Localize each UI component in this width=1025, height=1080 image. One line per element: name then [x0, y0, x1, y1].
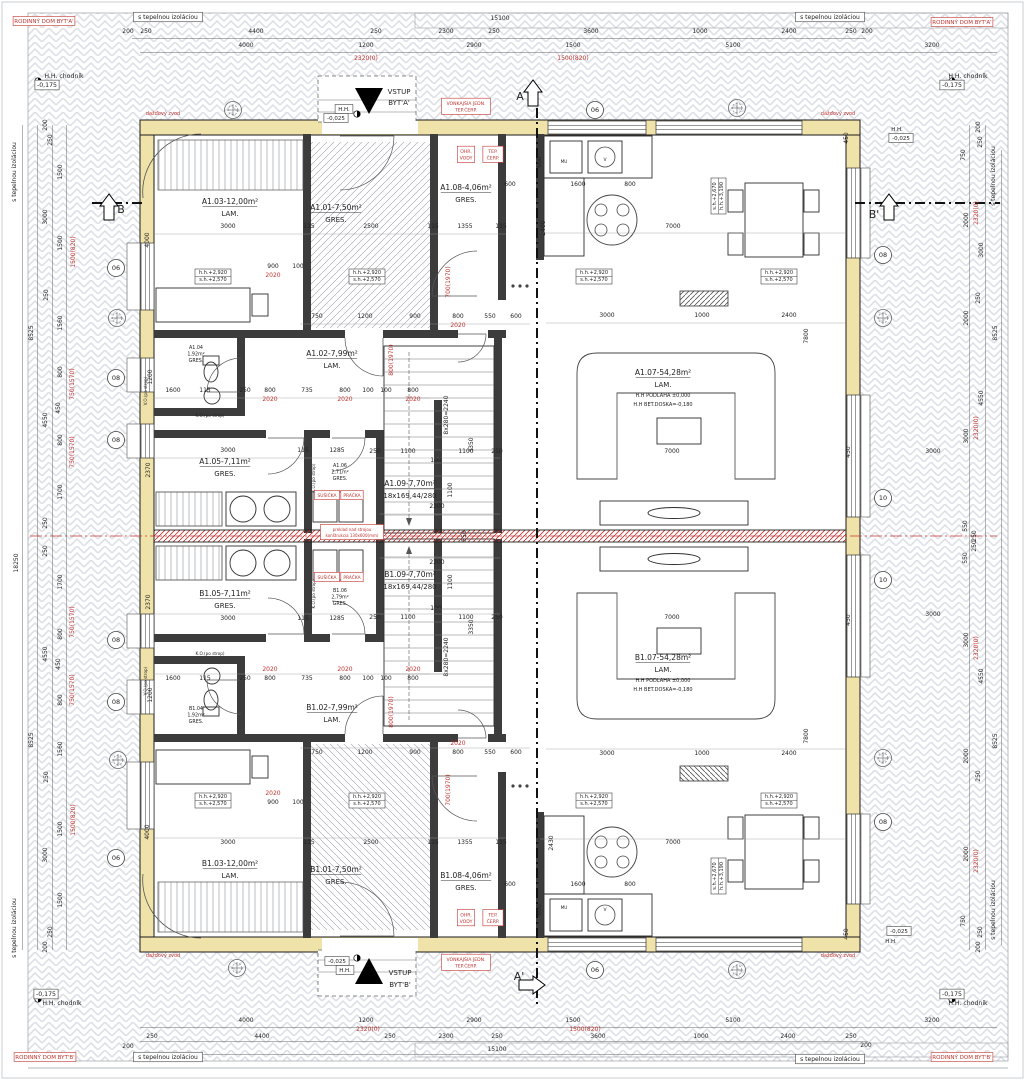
dim-label: 7800 [803, 728, 810, 743]
dim-label: 250 [43, 289, 50, 301]
window [141, 243, 154, 310]
dim-label: 3350 [468, 437, 475, 452]
height-label: s.h.+2,570 [580, 277, 607, 283]
room-floor-label: LAM. [654, 666, 671, 674]
interior-wall [488, 330, 506, 338]
entry-dots [518, 284, 521, 287]
dim-label: 3000 [925, 611, 940, 618]
dim-label: 3000 [42, 209, 49, 224]
annotation: s tepelnou izoláciou [138, 14, 198, 21]
dim-label: 250 [140, 28, 152, 35]
window-sill [127, 424, 140, 458]
dim-label: 5100 [725, 1017, 740, 1024]
dim-label: 800 [57, 694, 64, 706]
dim-label: 800 [339, 387, 351, 394]
interior-wall [383, 330, 458, 338]
annotation: -0,175 [37, 82, 57, 89]
chimney-block [680, 291, 728, 306]
red-note: PRAČKA [343, 492, 360, 499]
dim-label: 3000 [925, 448, 940, 455]
height-label: h.h.+2,920 [580, 270, 608, 276]
shower [156, 546, 222, 580]
dim-label: 1500(820) [70, 236, 77, 267]
dim-label: 1355 [457, 223, 472, 230]
dim-label: 450 [845, 446, 852, 458]
red-note: konštrukcia 130x600(mm) [326, 533, 379, 538]
dim-label: 115 [303, 223, 315, 230]
red-note: VONKAJŠIA JEDN. [446, 956, 485, 963]
room-label-small: B1.04 [189, 706, 203, 712]
dim-label: 800 [452, 749, 464, 756]
annotation: s tepelnou izoláciou [990, 880, 997, 940]
room-note: H.H PODLAHA ±0,000 [635, 393, 690, 399]
dim-label: 450 [55, 658, 62, 670]
dim-label: 2020 [265, 790, 280, 797]
window-sill [127, 358, 140, 392]
dim-label: 2900 [466, 42, 481, 49]
dim-label: 800(1970) [388, 696, 395, 727]
dim-label: 2320(0) [973, 201, 980, 225]
dim-label: 18250 [13, 553, 20, 572]
dim-label: 2320(0) [973, 416, 980, 440]
dim-label: 2020 [450, 322, 465, 329]
annotation: s tepelnou izoláciou [800, 14, 860, 21]
dim-label: 1700 [57, 574, 64, 589]
height-label: h.h.+3,190 [719, 862, 725, 890]
red-note: PRAČKA [343, 574, 360, 581]
sheet-title: RODINNÝ DOM BYT'A' [14, 18, 73, 25]
annotation: H.H. chodník [948, 72, 988, 80]
interior-wall [303, 134, 311, 330]
dim-label: 2020 [405, 396, 420, 403]
room-floor-label: LAM. [654, 381, 671, 389]
height-label: h.h.+2,920 [199, 794, 227, 800]
room-label-small: 2,71m² [331, 470, 348, 476]
annotation: s tepelnou izoláciou [138, 1054, 198, 1061]
dim-label: 1200 [147, 369, 154, 384]
dim-label: 2020 [450, 740, 465, 747]
height-label: h.h.+2,920 [353, 794, 381, 800]
height-label: s.h.+2,570 [199, 801, 226, 807]
room-floor-label: GRES. [455, 196, 476, 204]
room-label-small: GRES. [333, 601, 348, 607]
room-label: B1.01-7,50m² [310, 865, 362, 874]
grid-bubble-label: 08 [112, 698, 120, 706]
dim-label: 115 [297, 615, 309, 622]
dim-label: 115 [303, 839, 315, 846]
shower [156, 492, 222, 526]
dim-label: 3000 [963, 632, 970, 647]
dim-label: 1100 [400, 614, 415, 621]
dim-label: 750(1570) [69, 674, 76, 705]
annotation: B' [869, 208, 880, 221]
annotation: H.H. chodník [42, 999, 82, 1007]
window [141, 762, 154, 829]
height-box: h.h.+2,920s.h.+2,570 [349, 269, 385, 284]
dim-label: 1500(820) [569, 1026, 600, 1033]
dim-label: 3000 [220, 447, 235, 454]
dim-label: 115 [495, 223, 507, 230]
dim-label: 450 [843, 132, 850, 144]
dim-label: 600 [536, 156, 543, 168]
dim-label: 1100 [447, 482, 454, 497]
red-note: VODY [460, 919, 473, 925]
dim-label: 800 [407, 387, 419, 394]
annotation: -0,025 [328, 959, 346, 965]
dim-label: 900 [409, 749, 421, 756]
dim-label: 2300 [438, 1033, 453, 1040]
room-floor-label: GRES. [325, 216, 346, 224]
dim-label: 4000 [144, 824, 151, 839]
annotation: K.O.(po strop) [195, 651, 224, 656]
room-label: B1.02-7,99m² [306, 703, 358, 712]
sheet-title: RODINNÝ DOM BYT'B' [15, 1054, 74, 1061]
dim-label: 250 [971, 530, 978, 542]
dim-label: 800 [624, 881, 636, 888]
dim-label: 3000 [42, 847, 49, 862]
room-label: A1.01-7,50m² [310, 203, 362, 212]
dim-label: 1200 [357, 749, 372, 756]
grid-bubble-label: 08 [112, 636, 120, 644]
entry-dots [511, 784, 514, 787]
dim-label: 550 [962, 520, 969, 532]
dim-label: 1700 [57, 484, 64, 499]
height-label: s.h.+2,570 [199, 277, 226, 283]
room-floor-label: LAM. [221, 210, 238, 218]
height-label: h.h.+2,920 [580, 794, 608, 800]
grid-bubble-label: 06 [591, 966, 599, 974]
dim-label: 600 [504, 181, 516, 188]
dim-label: 8x280=2240 [443, 395, 450, 434]
dim-label: 2020 [337, 666, 352, 673]
room-floor-label: GRES. [214, 602, 235, 610]
annotation: A [516, 90, 524, 103]
dim-label: 15100 [490, 15, 509, 22]
window-sill [861, 395, 870, 517]
dim-label: 1500(820) [70, 804, 77, 835]
height-label: s.h.+2,570 [765, 277, 792, 283]
dim-label: 2020 [262, 396, 277, 403]
dim-label: 800 [264, 387, 276, 394]
interior-wall [154, 430, 266, 438]
dim-label: 200 [42, 941, 49, 953]
dim-label: 1100 [400, 448, 415, 455]
dim-label: 2000 [963, 310, 970, 325]
annotation: -0,025 [892, 136, 910, 142]
cooktop [587, 827, 637, 877]
room-label: A1.09-7,70m² [384, 479, 436, 488]
annotation: A' [514, 970, 525, 983]
annotation: s tepelnou izoláciou [990, 146, 997, 206]
dim-label: 250 [845, 28, 857, 35]
dim-label: 450 [55, 402, 62, 414]
dim-label: 7000 [664, 448, 679, 455]
red-note: OHR. [460, 912, 472, 918]
dim-label: 1500 [57, 164, 64, 179]
dim-label: 2320(0) [973, 849, 980, 873]
dim-label: 3200 [924, 42, 939, 49]
height-box: h.h.+2,920s.h.+2,570 [195, 793, 231, 808]
dim-label: 3000 [599, 750, 614, 757]
window [847, 168, 860, 258]
red-note: TEP. [487, 149, 497, 155]
entry-dots [525, 284, 528, 287]
dim-label: 1500 [57, 892, 64, 907]
room-floor-label: GRES. [455, 884, 476, 892]
room-label-small: GRES. [189, 719, 204, 725]
window [548, 938, 646, 951]
red-note: VODY [460, 156, 473, 162]
dim-label: 1200 [358, 1017, 373, 1024]
dim-label: 800 [624, 181, 636, 188]
grid-bubble-label: 08 [112, 436, 120, 444]
dim-label: 3600 [583, 28, 598, 35]
dim-label: 100 [380, 675, 392, 682]
grid-bubble-label: 10 [879, 576, 887, 584]
dim-label: 15100 [487, 1046, 506, 1053]
dim-label: 450 [845, 614, 852, 626]
dim-label: 7800 [803, 328, 810, 343]
dim-label: 250 [975, 292, 982, 304]
height-label: s.h.+2,570 [765, 801, 792, 807]
dim-label: 600 [510, 313, 522, 320]
tiled-floor-hatch [311, 744, 430, 930]
dim-label: 200 [975, 121, 982, 133]
dim-label: 2320(0) [356, 1026, 380, 1033]
window [656, 121, 802, 134]
dim-label: 115 [199, 675, 211, 682]
room-note: H.H BET.DOSKA=-0,180 [633, 402, 692, 408]
dim-label: 3000 [220, 223, 235, 230]
dim-label: 2320(0) [354, 55, 378, 62]
dim-label: 735 [301, 675, 313, 682]
dim-label: 1600 [570, 881, 585, 888]
window [847, 814, 860, 904]
annotation: K.O.(po strop) [311, 463, 316, 492]
dim-label: 2400 [540, 220, 547, 235]
dim-label: 1600 [165, 675, 180, 682]
dim-label: 1200 [357, 313, 372, 320]
dim-label: 200 [42, 119, 49, 131]
interior-wall [154, 656, 245, 664]
dim-label: 200 [122, 1043, 134, 1050]
window-sill [127, 680, 140, 714]
floor-plan-canvas: RODINNÝ DOM BYT'A'RODINNÝ DOM BYT'A'RODI… [0, 0, 1025, 1080]
dim-label: 200 [861, 28, 873, 35]
interior-wall [237, 660, 245, 734]
dim-label: 3200 [924, 1017, 939, 1024]
dim-label: 250 [977, 926, 984, 938]
room-label: A1.07-54,28m² [635, 368, 691, 377]
window-sill [861, 555, 870, 677]
dim-label: 750 [311, 749, 323, 756]
height-box: h.h.+2,920s.h.+2,570 [349, 793, 385, 808]
interior-wall [488, 734, 506, 742]
window-sill [127, 243, 140, 310]
dim-label: 1285 [329, 615, 344, 622]
annotation: dažďový zvod [146, 952, 180, 959]
dim-label: 1000 [693, 1033, 708, 1040]
red-note: TEP.ČERP. [454, 963, 477, 970]
dim-label: 115 [199, 387, 211, 394]
red-note: VONKAJŠIA JEDN. [446, 100, 485, 107]
height-box: s.h.+2,670h.h.+3,190 [711, 178, 726, 214]
dim-label: 2430 [548, 835, 555, 850]
annotation: VSTUP [389, 969, 412, 977]
interior-wall [154, 634, 266, 642]
dim-label: 4550 [42, 646, 49, 661]
dim-label: 100 [362, 387, 374, 394]
annotation: s tepelnou izoláciou [800, 1056, 860, 1063]
dim-label: 750(1570) [69, 368, 76, 399]
dim-label: 2400 [781, 750, 796, 757]
dim-label: 250 [975, 770, 982, 782]
dim-label: 1500 [565, 1017, 580, 1024]
red-note: preklad nad strojou [333, 527, 372, 532]
chimney-block [680, 766, 728, 781]
dim-label: 600 [510, 749, 522, 756]
height-label: h.h.+2,920 [765, 794, 793, 800]
red-note: ČERP. [487, 918, 500, 925]
window-sill [127, 762, 140, 829]
room-label: A1.08-4,06m² [440, 183, 492, 192]
room-label-small: GRES. [189, 358, 204, 364]
dim-label: 1600 [165, 387, 180, 394]
dim-label: 2320(0) [973, 636, 980, 660]
red-note: TEP. [487, 912, 497, 918]
room-label: A1.03-12,00m² [202, 197, 258, 206]
dim-label: 2020 [265, 272, 280, 279]
window [656, 938, 802, 951]
dim-label: 250 [488, 28, 500, 35]
dim-label: 4400 [248, 28, 263, 35]
interior-wall [365, 634, 384, 642]
drawing-sheet: RODINNÝ DOM BYT'A'RODINNÝ DOM BYT'A'RODI… [0, 0, 1025, 1080]
dim-label: 250 [491, 448, 503, 455]
dim-label: 1355 [457, 839, 472, 846]
red-note: TEP.ČERP. [454, 107, 477, 114]
dim-label: 250 [370, 28, 382, 35]
room-label-small: GRES. [333, 476, 348, 482]
dim-label: 735 [301, 387, 313, 394]
dim-label: 8525 [28, 732, 35, 747]
annotation: -0,175 [942, 991, 962, 998]
window-sill [861, 814, 870, 904]
dim-label: 200 [860, 1042, 872, 1049]
dim-label: 250 [146, 1033, 158, 1040]
dim-label: 1285 [329, 447, 344, 454]
dim-label: 800 [452, 313, 464, 320]
grid-bubble-label: 08 [879, 818, 887, 826]
room-floor-label: LAM. [221, 872, 238, 880]
sheet-title: RODINNÝ DOM BYT'B' [932, 1054, 991, 1061]
red-note: SUŠIČKA [318, 574, 337, 581]
annotation: dažďový zvod [821, 110, 855, 117]
dim-label: 250 [239, 387, 251, 394]
height-label: h.h.+2,920 [199, 270, 227, 276]
height-box: s.h.+2,670h.h.+3,190 [711, 858, 726, 894]
annotation: K.O.(po strop) [311, 579, 316, 608]
dim-label: 250 [491, 614, 503, 621]
dim-label: 2000 [963, 846, 970, 861]
dim-label: 3600 [590, 1033, 605, 1040]
dim-label: 1560 [57, 741, 64, 756]
room-label-small: B1.06 [333, 588, 347, 594]
room-floor-label: 18x169,44/280 [383, 492, 436, 500]
dim-label: 5100 [725, 42, 740, 49]
dim-label: 100 [292, 263, 304, 270]
dim-label: 250 [42, 545, 49, 557]
dim-label: 115 [427, 839, 439, 846]
dim-label: 7000 [665, 223, 680, 230]
dim-label: 250 [43, 771, 50, 783]
annotation: VSTUP [388, 88, 411, 96]
dim-label: 2300 [429, 559, 444, 566]
annotation: -0,175 [942, 82, 962, 89]
dim-label: 115 [495, 839, 507, 846]
dim-label: 1560 [57, 315, 64, 330]
dim-label: 250 [239, 675, 251, 682]
dim-label: 1200 [147, 687, 154, 702]
interior-wall [304, 634, 330, 642]
dim-label: 2400 [781, 312, 796, 319]
annotation: B [117, 203, 125, 216]
dim-label: 550 [484, 749, 496, 756]
interior-wall [365, 430, 384, 438]
dim-label: 7000 [665, 839, 680, 846]
dim-label: 2020 [262, 666, 277, 673]
room-label-small: A1.04 [189, 345, 203, 351]
dim-label: 4000 [238, 1017, 253, 1024]
height-box: h.h.+2,920s.h.+2,570 [761, 793, 797, 808]
dim-label: 3000 [220, 615, 235, 622]
dim-label: 2000 [963, 212, 970, 227]
dim-label: 2500 [363, 839, 378, 846]
height-label: s.h.+2,670 [712, 862, 718, 889]
annotation: H.H. [891, 127, 903, 133]
dim-label: 4550 [978, 668, 985, 683]
annotation: s tepelnou izoláciou [11, 142, 18, 202]
height-label: h.h.+3,190 [719, 182, 725, 210]
dim-label: 2300 [438, 28, 453, 35]
height-label: s.h.+2,570 [580, 801, 607, 807]
dim-label: 3000 [963, 428, 970, 443]
dim-label: 1100 [447, 574, 454, 589]
dim-label: 2000 [963, 748, 970, 763]
annotation: H.H. [338, 107, 350, 113]
room-label-small: 1,92m² [187, 713, 204, 719]
annotation: K.O.(po strop) [195, 413, 224, 418]
dim-label: 750(1570) [69, 606, 76, 637]
annotation: -0,025 [890, 929, 908, 935]
room-note: H.H BET.DOSKA=-0,180 [633, 687, 692, 693]
dim-label: 2500 [363, 223, 378, 230]
interior-wall [154, 734, 345, 742]
dim-label: 800 [264, 675, 276, 682]
dim-label: 600 [536, 904, 543, 916]
dim-label: 200 [122, 28, 134, 35]
dim-label: 3000 [978, 242, 985, 257]
dim-label: 3000 [599, 312, 614, 319]
height-label: h.h.+2,920 [353, 270, 381, 276]
dim-label: 2020 [405, 666, 420, 673]
height-label: h.h.+2,920 [765, 270, 793, 276]
dim-label: 900 [267, 263, 279, 270]
grid-bubble-label: 08 [112, 374, 120, 382]
dim-label: 100 [430, 605, 442, 612]
dim-label: 8x280=2240 [443, 637, 450, 676]
dim-label: 2400 [781, 28, 796, 35]
